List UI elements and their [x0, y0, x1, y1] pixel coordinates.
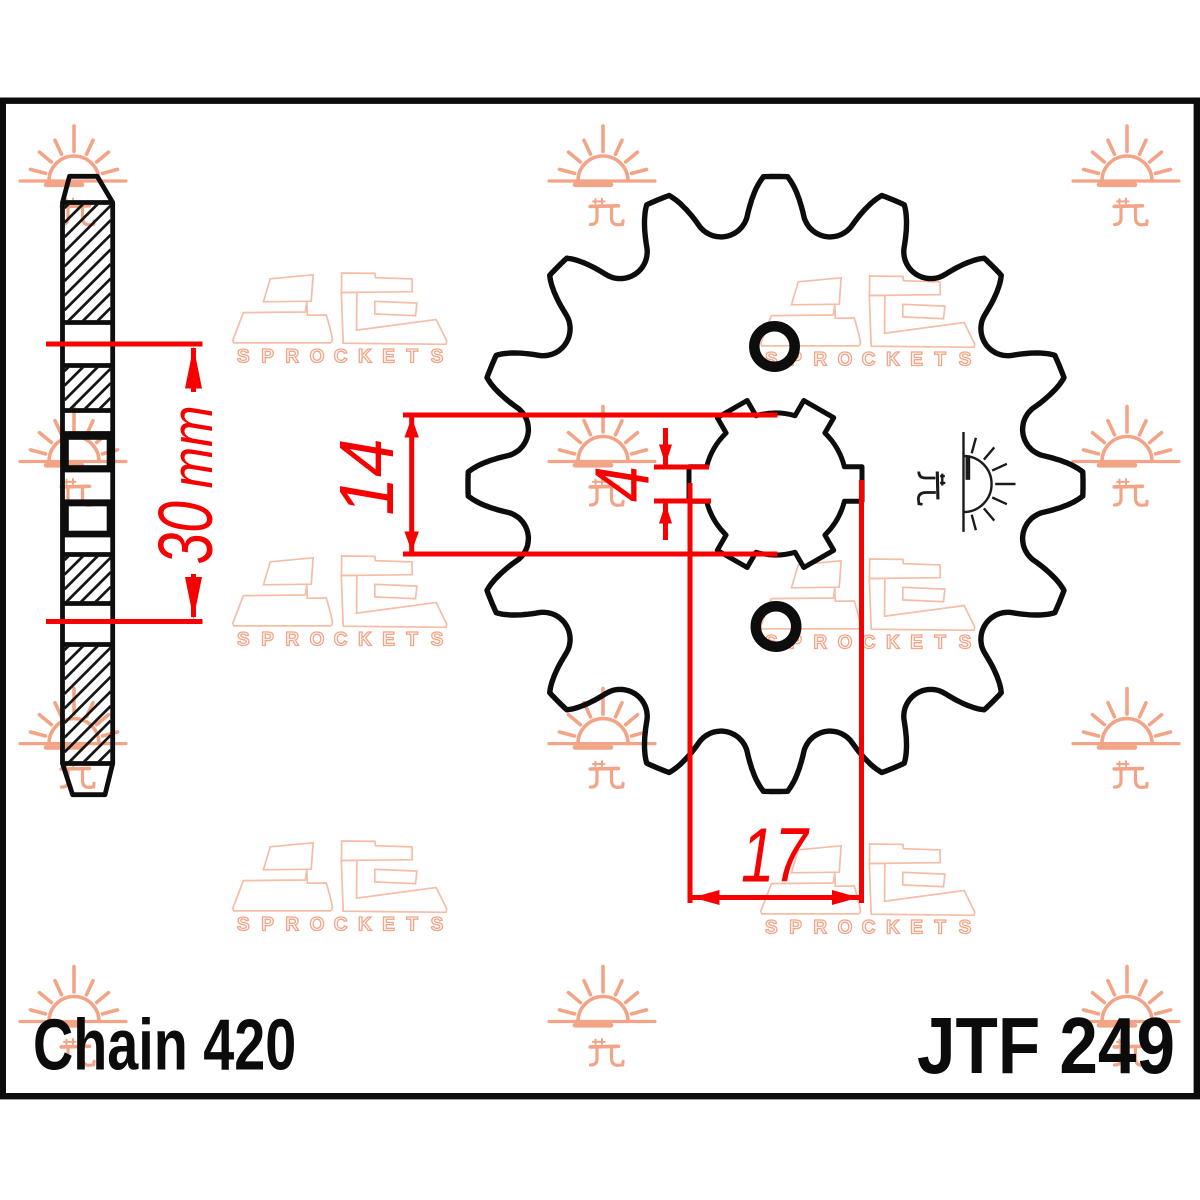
- svg-text:mm: mm: [161, 405, 225, 488]
- svg-text:4: 4: [580, 466, 666, 502]
- svg-text:Chain 420: Chain 420: [33, 1005, 296, 1086]
- svg-text:JTF 249: JTF 249: [917, 1000, 1175, 1090]
- svg-text:30: 30: [144, 501, 229, 565]
- svg-text:17: 17: [741, 811, 810, 898]
- svg-text:14: 14: [324, 438, 410, 515]
